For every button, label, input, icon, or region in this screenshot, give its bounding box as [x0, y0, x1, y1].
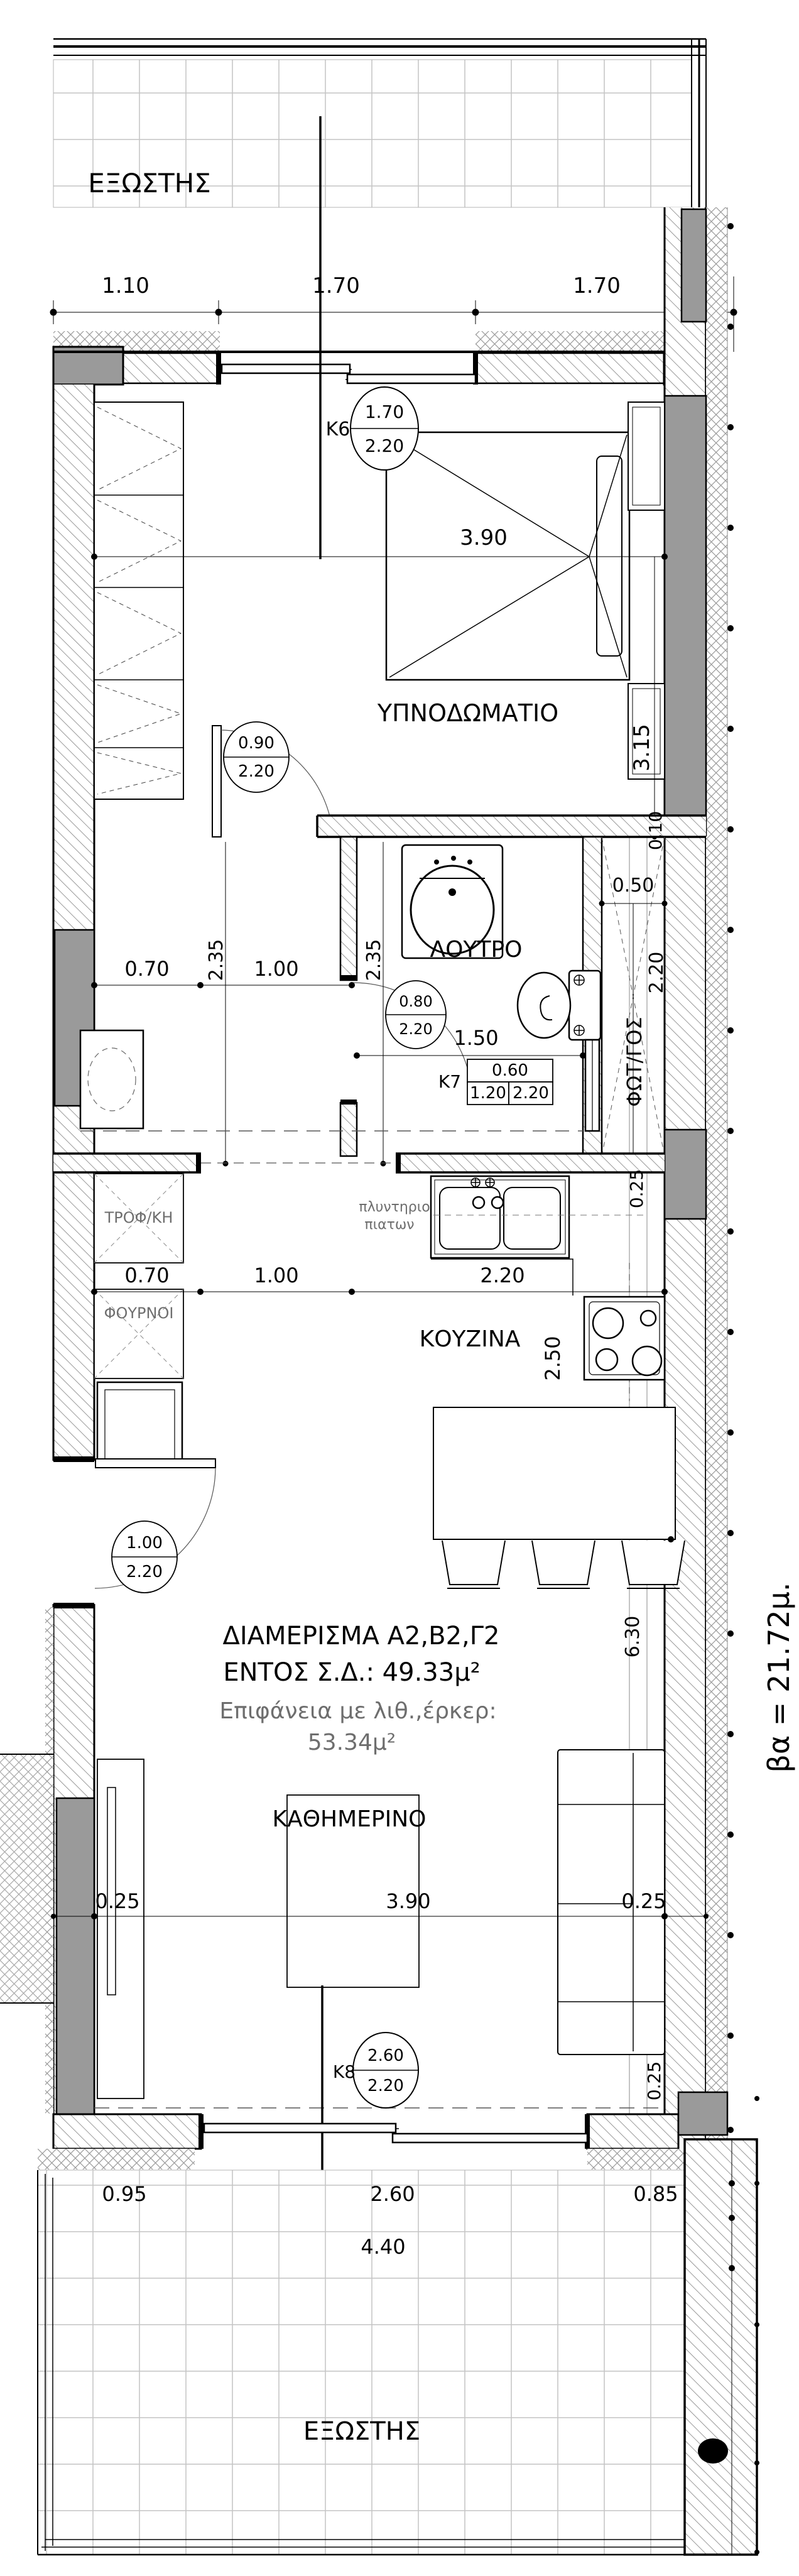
sliding-door-k6	[220, 364, 476, 383]
ovens-label: ΦΟΥΡΝΟΙ	[104, 1306, 174, 1321]
dim-kitchen-counter: 2.20	[480, 1265, 525, 1285]
dim-bottom-1: 0.95	[102, 2184, 146, 2204]
tag-bath-door-w: 0.80	[399, 994, 432, 1009]
wall-right	[665, 207, 727, 2139]
dim-hall-v1: 2.35	[207, 939, 226, 981]
nightstand	[628, 402, 665, 510]
dim-bottom-total: 4.40	[361, 2237, 405, 2257]
dim-living-bottom: 0.25	[646, 2061, 663, 2100]
tag-k7-w: 0.60	[492, 1062, 528, 1079]
dim-bed-width: 3.90	[460, 527, 508, 548]
title-line4: 53.34μ²	[308, 1732, 396, 1754]
tag-bedroom-door-w: 0.90	[238, 735, 274, 751]
tag-k6	[351, 387, 418, 470]
dim-hall-v2: 2.35	[365, 939, 384, 981]
living-label: ΚΑΘΗΜΕΡΙΝΟ	[272, 1808, 426, 1831]
tag-bedroom-door-h: 2.20	[238, 763, 274, 780]
tag-entry-w: 1.00	[126, 1535, 163, 1551]
balcony-bottom-label: ΕΞΩΣΤΗΣ	[303, 2419, 420, 2444]
wall-top	[53, 347, 706, 385]
side-note: βα = 21.72μ.	[764, 1582, 793, 1772]
dim-hall-corridor: 1.00	[254, 959, 298, 979]
dim-kitchen-offset: 0.25	[628, 1169, 646, 1208]
tag-k8-id: K8	[333, 2063, 356, 2081]
dim-lw-gap: 0.10	[647, 811, 665, 850]
tag-k8	[353, 2033, 418, 2108]
tag-bedroom-door	[224, 722, 289, 792]
dim-hall-bath: 1.50	[454, 1028, 498, 1048]
dim-lw-depth: 2.20	[648, 952, 666, 994]
floor-plan: ΕΞΩΣΤΗΣ ΕΞΩΣΤΗΣ 1.10 1.70 1.70 K6 1.70 2…	[0, 0, 799, 2576]
tag-k6-h: 2.20	[365, 437, 404, 455]
dim-hall-wm: 0.70	[124, 959, 169, 979]
tag-entry-h: 2.20	[126, 1564, 163, 1580]
kitchen-label: ΚΟΥΖΙΝΑ	[420, 1328, 521, 1351]
tag-bath-door	[386, 981, 446, 1049]
dim-bottom-2: 2.60	[370, 2184, 415, 2204]
kitchen-sink	[431, 1176, 647, 1258]
dim-living-left: 0.25	[95, 1891, 139, 1911]
dishwasher-label-2: πιατων	[364, 1218, 414, 1232]
dim-bed-depth: 3.15	[631, 724, 653, 772]
balcony-bottom	[38, 2170, 685, 2555]
tag-k8-w: 2.60	[367, 2048, 404, 2064]
dim-top-1: 1.10	[102, 275, 149, 297]
dim-kitchen-depth: 2.50	[543, 1336, 563, 1380]
dim-top-3: 1.70	[573, 275, 621, 297]
party-wall-pillar	[685, 2096, 759, 2555]
window-k7	[585, 1040, 599, 1131]
dim-bottom-3: 0.85	[633, 2184, 678, 2204]
dim-kitchen-pantry: 0.70	[124, 1265, 169, 1285]
cooktop	[584, 1297, 665, 1380]
dim-hall	[91, 842, 586, 1167]
wardrobe	[94, 402, 183, 799]
right-band-dots	[727, 223, 734, 2133]
tv-cabinet	[97, 1759, 144, 2098]
title-line3: Επιφάνεια με λιθ.,έρκερ:	[219, 1700, 496, 1723]
tag-k7-id: K7	[438, 1073, 461, 1091]
tag-entry-door	[112, 1521, 177, 1593]
dim-top-2: 1.70	[312, 275, 360, 297]
title-line2: ΕΝΤΟΣ Σ.Δ.: 49.33μ²	[223, 1660, 480, 1685]
tag-k8-h: 2.20	[367, 2078, 404, 2094]
dim-lw-width: 0.50	[612, 876, 655, 895]
title-line1: ΔΙΑΜΕΡΙΣΜΑ Α2,Β2,Γ2	[223, 1624, 500, 1649]
bedroom-label: ΥΠΝΟΔΩΜΑΤΙΟ	[378, 701, 558, 725]
tag-k7-b: 2.20	[513, 1085, 549, 1101]
ovens-cabinet	[94, 1289, 183, 1378]
washing-machine	[80, 1030, 143, 1128]
dim-living-width: 3.90	[386, 1891, 430, 1911]
balcony-top-label: ΕΞΩΣΤΗΣ	[88, 170, 210, 197]
neighbour-slab	[0, 1754, 53, 2003]
wall-kitchen	[53, 1154, 665, 1172]
toilet	[518, 971, 601, 1040]
bed	[386, 432, 629, 680]
tag-bath-door-h: 2.20	[399, 1022, 432, 1037]
dim-kitchen-pass: 1.00	[254, 1265, 298, 1285]
dining-table	[433, 1407, 685, 1588]
tag-k7-a: 1.20	[470, 1085, 506, 1101]
dim-living-right: 0.25	[621, 1891, 666, 1911]
tag-k6-w: 1.70	[365, 403, 404, 421]
dim-living-depth: 6.30	[624, 1616, 643, 1658]
bath-label: ΛΟΥΤΡΟ	[430, 939, 523, 961]
lightwell-label: ΦΩΤ/ΓΟΣ	[624, 1017, 644, 1106]
pantry-label: ΤΡΟΦ/ΚΗ	[105, 1210, 173, 1225]
oven-appliance	[97, 1382, 182, 1467]
tag-k6-id: K6	[326, 420, 351, 439]
dishwasher-label-1: πλυντηριο	[359, 1201, 430, 1214]
